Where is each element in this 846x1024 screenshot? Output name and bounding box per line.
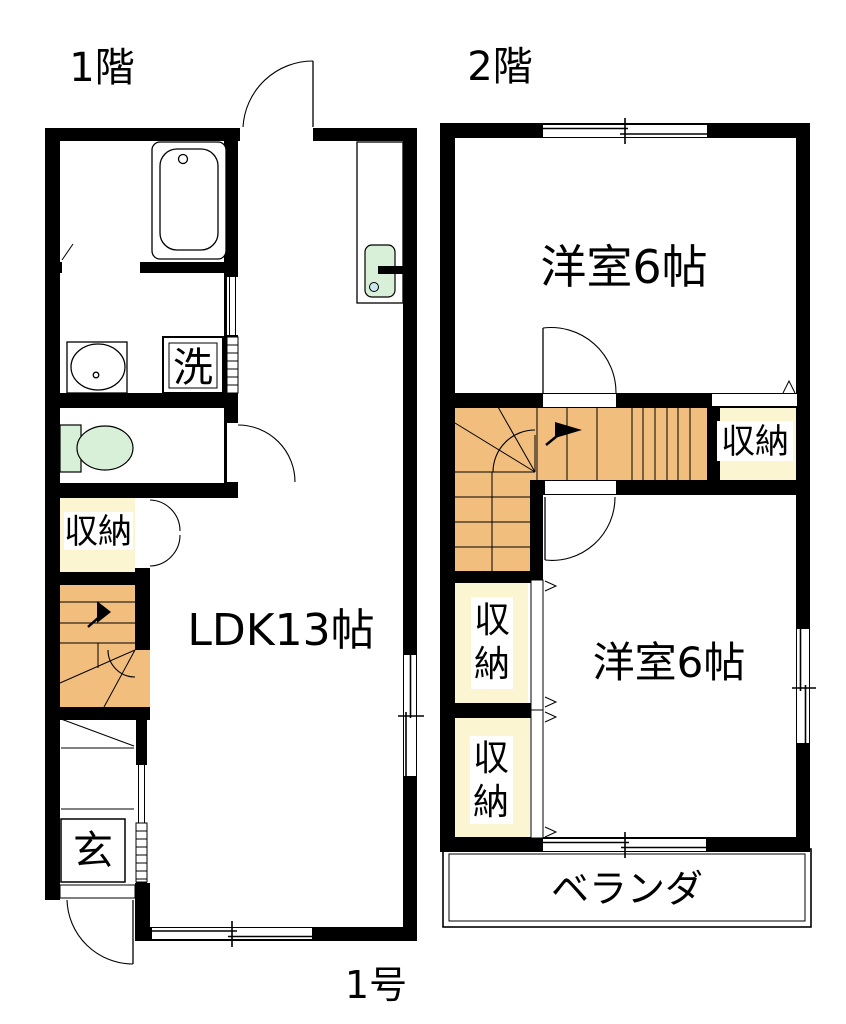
entrance-area: 玄 [60, 719, 135, 898]
toilet [60, 425, 133, 472]
veranda: ベランダ [443, 849, 811, 927]
kitchen-drain [370, 283, 379, 292]
floorplan-canvas: 洗 [0, 0, 846, 1024]
laundry-label: 洗 [173, 345, 213, 391]
bedroom-north-label: 洋室6帖 [540, 240, 707, 294]
window-bedroom-east [792, 629, 816, 743]
closet-2f-upper-label: 収納 [717, 421, 793, 462]
kitchen-counter [357, 142, 403, 303]
closet-2f-mid-label: 収納 [471, 597, 513, 689]
svg-text:収納: 収納 [721, 422, 789, 462]
window-ldk-south [152, 921, 312, 947]
window-bedroom-north [543, 118, 707, 144]
closet-2f-lower-label: 収納 [470, 736, 513, 824]
stairs-1f-fill-notch [135, 650, 150, 707]
front-door [67, 900, 133, 964]
kitchen-faucet [378, 266, 403, 274]
closet-1f-double-doors [150, 500, 180, 566]
floor1-title: 1階 [69, 45, 134, 91]
bath-folding-door [62, 244, 73, 260]
ldk-label: LDK13帖 [187, 605, 374, 656]
closet-door-strip-mid [531, 580, 556, 710]
hatch-strip-entrance [136, 823, 147, 882]
window-ldk-east [398, 655, 424, 776]
sliding-door-washroom [227, 277, 238, 335]
floor2-plan: ベランダ [440, 44, 816, 927]
toilet-door-arc [238, 425, 295, 482]
washing-machine-space: 洗 [163, 337, 223, 393]
bathtub [152, 142, 226, 259]
back-door [243, 61, 313, 127]
floorplan-svg: 洗 [0, 0, 846, 1024]
bedroom-south-label: 洋室6帖 [593, 638, 746, 687]
floor1-plan: 洗 [45, 45, 424, 1007]
hatch-strip-washroom [227, 337, 238, 393]
bedroom-north-door [543, 328, 616, 393]
closet-door-strip-lower [531, 710, 556, 838]
bedroom-south-door [545, 497, 615, 560]
floor2-title: 2階 [467, 44, 532, 90]
closet-1f-label: 収納 [64, 512, 133, 552]
vanity-sink [67, 342, 127, 393]
entrance-label: 玄 [73, 828, 113, 874]
entrance-threshold [60, 885, 135, 898]
sliding-door-entrance [136, 765, 147, 823]
unit-label: 1号 [345, 963, 407, 1007]
veranda-label: ベランダ [551, 867, 703, 911]
svg-text:収納: 収納 [64, 512, 132, 552]
closet-upper-door-mark [783, 381, 795, 393]
